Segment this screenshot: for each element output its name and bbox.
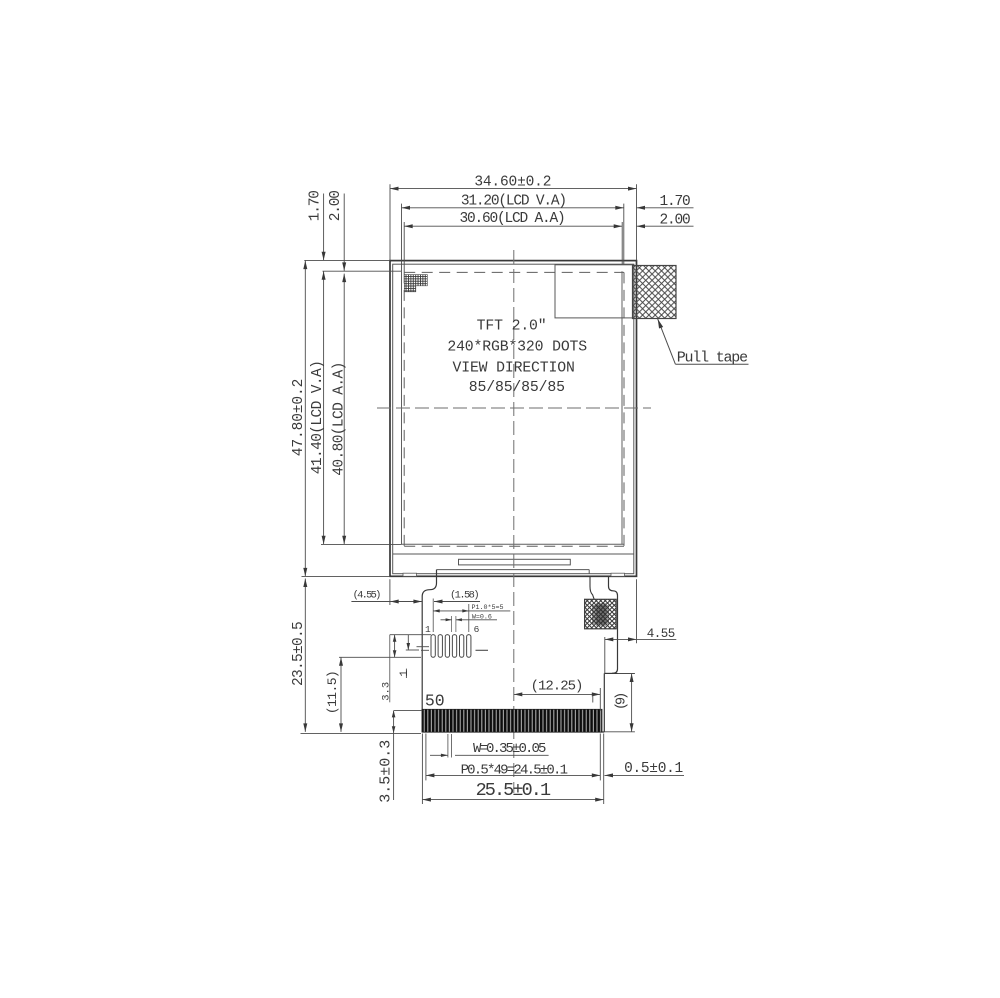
svg-text:(12.25): (12.25) xyxy=(531,679,583,695)
svg-text:0.5±0.1: 0.5±0.1 xyxy=(624,761,683,777)
svg-text:P1.0*5=5: P1.0*5=5 xyxy=(471,604,503,612)
svg-text:(11.5): (11.5) xyxy=(325,671,340,714)
svg-text:240*RGB*320 DOTS: 240*RGB*320 DOTS xyxy=(447,340,587,356)
svg-text:Pull tape: Pull tape xyxy=(677,349,748,366)
svg-text:1: 1 xyxy=(399,670,411,677)
svg-text:P0.5*49=24.5±0.1: P0.5*49=24.5±0.1 xyxy=(461,762,568,778)
svg-text:(4.55): (4.55) xyxy=(353,590,380,602)
svg-text:1: 1 xyxy=(425,624,431,635)
svg-text:W=0.6: W=0.6 xyxy=(472,613,492,621)
svg-text:2.00: 2.00 xyxy=(659,212,690,228)
svg-text:(9): (9) xyxy=(614,694,629,710)
svg-text:34.60±0.2: 34.60±0.2 xyxy=(474,174,551,190)
svg-text:3.5±0.3: 3.5±0.3 xyxy=(378,740,395,803)
svg-text:25.5±0.1: 25.5±0.1 xyxy=(476,780,551,801)
svg-text:23.5±0.5: 23.5±0.5 xyxy=(291,622,307,686)
svg-text:1.70: 1.70 xyxy=(659,194,690,210)
svg-text:4.55: 4.55 xyxy=(647,627,675,641)
svg-text:41.40(LCD V.A): 41.40(LCD V.A) xyxy=(310,361,326,474)
svg-text:(1.58): (1.58) xyxy=(450,590,478,602)
svg-text:31.20(LCD V.A): 31.20(LCD V.A) xyxy=(461,193,566,209)
svg-text:40.80(LCD A.A): 40.80(LCD A.A) xyxy=(331,362,347,475)
svg-text:1.70: 1.70 xyxy=(307,191,323,222)
svg-text:85/85/85/85: 85/85/85/85 xyxy=(469,380,565,396)
svg-text:2.00: 2.00 xyxy=(328,191,344,222)
svg-text:TFT 2.0″: TFT 2.0″ xyxy=(477,319,547,335)
svg-text:3.3: 3.3 xyxy=(381,682,393,701)
svg-text:30.60(LCD A.A): 30.60(LCD A.A) xyxy=(459,211,564,227)
svg-text:50: 50 xyxy=(425,692,445,711)
svg-text:6: 6 xyxy=(474,624,480,635)
svg-text:47.80±0.2: 47.80±0.2 xyxy=(291,379,307,456)
svg-text:W=0.35±0.05: W=0.35±0.05 xyxy=(473,741,546,757)
svg-text:VIEW DIRECTION: VIEW DIRECTION xyxy=(452,360,574,376)
